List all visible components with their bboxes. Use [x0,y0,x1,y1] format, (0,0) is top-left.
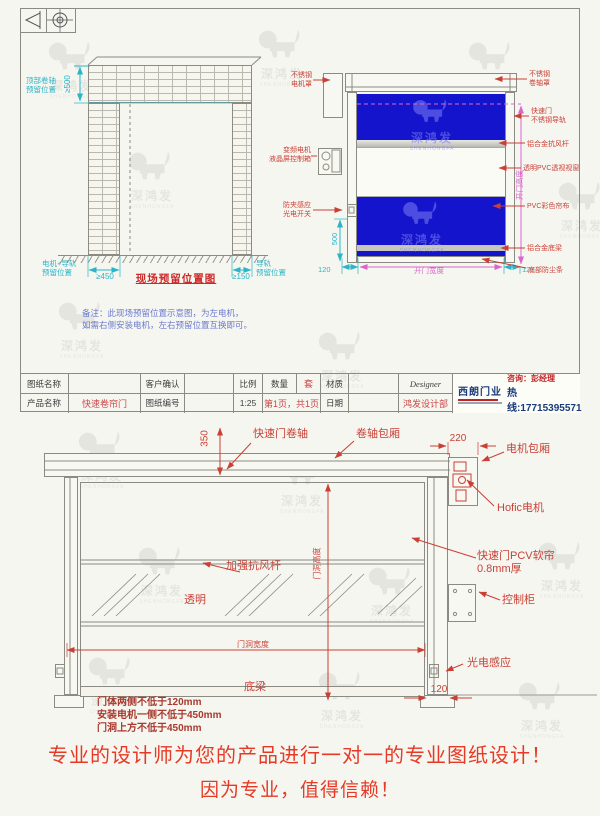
site-note: 备注：此现场预留位置示意图，为左电机， 如需右侧安装电机，左右预留位置互换即可。 [82,307,282,332]
label-motor-rail-space: 电机+导轨 预留位置 [42,259,86,278]
title-block: 图纸名称 客户确认 比例 数量 套 材质 Designer 产品名称 快速卷帘门… [20,373,580,412]
dim-350: 350 [200,424,211,454]
wall-pillar-right [232,103,252,255]
label-photo-sensor: 光电感应 [467,657,519,670]
dim-door-width: 门洞宽度 [233,639,273,650]
scale-value: 1:25 [233,393,262,413]
dim-door-open-height: 开门高度 [514,161,524,209]
motor-cover-box [323,73,343,118]
rail-right-s2 [427,477,448,695]
scale-label: 比例 [233,374,262,393]
material-value [348,374,398,393]
drawing-no-label: 图纸编号 [140,393,184,413]
label-roller-cover: 不锈钢 卷轴罩 [529,70,559,89]
photo-sensor-left [347,204,357,217]
dim-right-150: ≥150 [226,272,256,282]
logo-company-name: 西朗门业 [458,383,502,398]
slogan-line-2: 因为专业，值得信赖！ [30,775,570,802]
dim-door-height: 门洞高度 [313,540,324,588]
dim-left-450: ≥450 [90,272,120,282]
logo-hotline: 热线:17715395571 [507,384,582,414]
qty-value: 套 [296,374,320,393]
projection-symbol-box [20,8,76,33]
label-track: 快速门 不锈钢导轨 [531,107,571,126]
label-motor-cover: 不锈钢 电机罩 [290,71,312,90]
material-label: 材质 [320,374,348,393]
label-pvc-curtain: 快速门PCV软帘 0.8mm厚 [477,550,573,576]
curtain-window [357,147,505,197]
curtain-wind-bar [357,140,505,147]
design-dept-value: 鸿发设计部 [398,393,452,413]
wall-lintel [88,65,252,103]
label-roller-box: 卷轴包厢 [356,428,412,441]
drawing-no-value [184,393,233,413]
dim-top-500: ≥500 [63,65,73,103]
curtain-blue-top [357,94,505,140]
label-hofic-motor: Hofic电机 [497,502,563,515]
symbol-divider [46,8,47,33]
motor-box [448,457,478,506]
photo-sensor-right-s2 [429,664,439,678]
curtain-blue-bottom [357,197,505,245]
product-name-label: 产品名称 [20,393,68,413]
photo-sensor-left-s2 [55,664,65,678]
watermark-lion: 深鸿发SHENHONGFA [500,680,584,740]
rail-right-foot [420,695,455,708]
dim-120-right: 120 [522,265,544,274]
door-rail-left [347,92,357,263]
label-safety-sensor: 防夹感应 光电开关 [282,201,311,220]
logo-microtext-bar [458,402,502,404]
label-wind-bar-s2: 加强抗风杆 [226,560,292,573]
dim-sensor-height: 500 [330,226,340,252]
date-label: 日期 [320,393,348,413]
page-value: 第1页，共1页 [262,393,320,413]
label-motor: 变频电机 液晶屏控制箱 [268,146,311,165]
label-bottom-beam-s2: 底梁 [244,681,272,694]
label-motor-box: 电机包厢 [506,443,562,456]
projection-symbols-icon [21,9,75,32]
label-rail-space: 导轨 预留位置 [256,259,292,278]
label-curtain: PVC彩色帘布 [527,202,579,211]
roller-box [44,453,450,477]
label-top-roller-space: 顶部卷轴 预留位置 [26,76,68,95]
product-name-value: 快速卷帘门 [68,393,140,413]
label-wind-bar: 铝合金抗风杆 [527,140,577,149]
control-box [448,584,476,622]
ground-hatch [58,255,268,263]
motor-device [318,148,342,175]
label-roller-shaft: 快速门卷轴 [253,428,323,441]
dim-220: 220 [444,433,472,445]
customer-confirm-label: 客户确认 [140,374,184,393]
slogan-line-1: 专业的设计师为您的产品进行一对一的专业图纸设计！ [30,739,570,768]
curtain-panel-s2 [80,482,425,697]
designer-label: Designer [398,374,452,393]
label-control-box: 控制柜 [502,594,546,607]
drawing-name-value [68,374,140,393]
logo-contact-person: 咨询：彭经理 [507,373,582,384]
drawing-name-label: 图纸名称 [20,374,68,393]
customer-confirm-value [184,374,233,393]
site-diagram-title: 现场预留位置图 [131,271,221,286]
logo-microtext-bar [458,399,498,401]
dim-120-left: 120 [318,265,340,274]
drawing-page: { "brand": {"name_cn": "深鸿发", "name_en":… [0,0,600,816]
door-bottom-edge [357,256,505,263]
label-transparent: 透明 [184,591,216,607]
date-value [348,393,398,413]
rail-left-s2 [64,477,78,695]
wall-pillar-left [88,103,120,255]
label-bottom-beam: 铝合金底梁 [527,244,571,253]
dim-door-open-width: 开门宽度 [414,265,450,276]
roller-cover-header [345,73,517,92]
qty-label: 数量 [262,374,296,393]
logo-cell: 西朗门业 咨询：彭经理 热线:17715395571 [452,374,580,413]
label-window: 透明PVC透视视窗 [523,164,583,173]
installation-notes: 门体两侧不低于120mm 安装电机一侧不低于450mm 门洞上方不低于450mm [97,696,287,735]
dim-120-s2: 120 [426,684,452,695]
